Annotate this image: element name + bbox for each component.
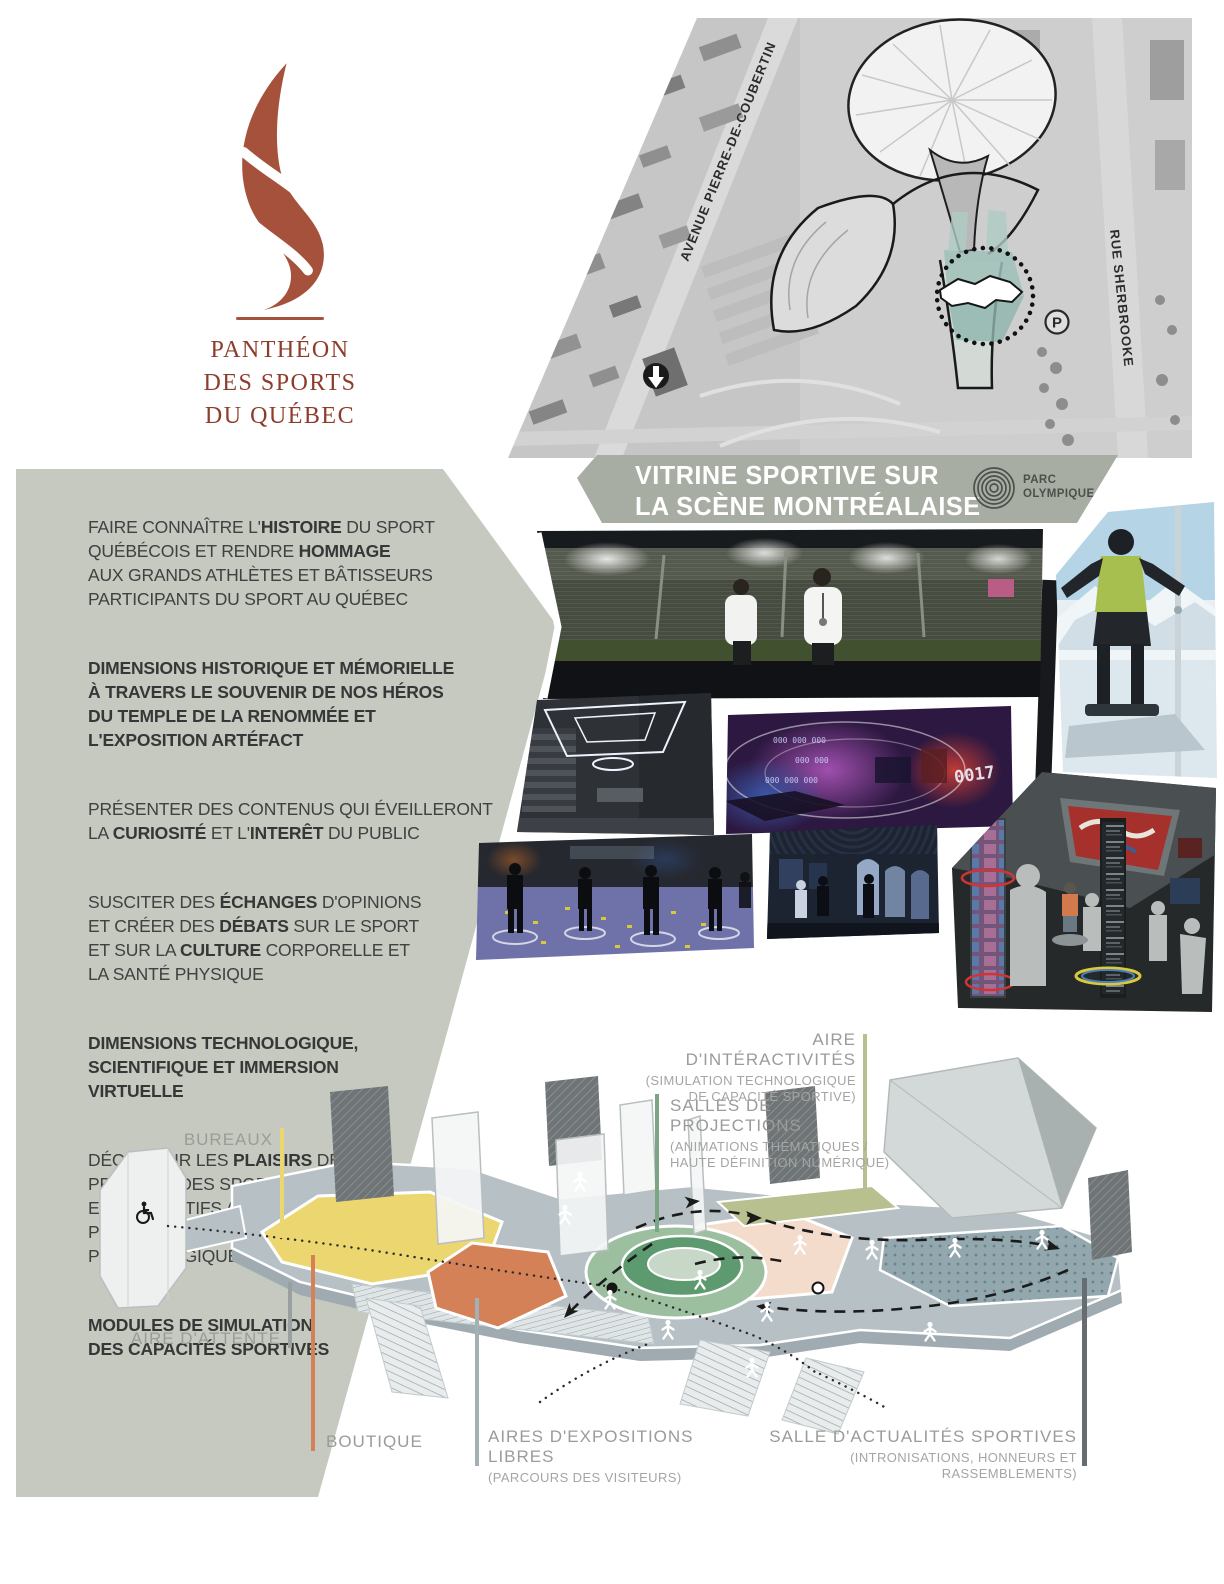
- plan-label-title: BOUTIQUE: [326, 1432, 466, 1452]
- svg-text:000 000: 000 000: [795, 756, 829, 765]
- plan-label-interactivites: AIRE D'INTÉRACTIVITÉS (SIMULATION TECHNO…: [640, 1030, 856, 1106]
- photo-neon-gallery: [505, 692, 715, 842]
- photo-ski-simulator: [1055, 500, 1217, 778]
- svg-text:P: P: [1052, 315, 1062, 332]
- plan-label-sub: (INTRONISATIONS, HONNEURS ET RASSEMBLEME…: [759, 1450, 1077, 1483]
- panorama-figures: [536, 527, 1044, 703]
- plan-label-actualites: SALLE D'ACTUALITÉS SPORTIVES (INTRONISAT…: [759, 1427, 1077, 1483]
- svg-text:000 000 000: 000 000 000: [773, 736, 826, 745]
- plan-label-attente: AIRE D'ATTENTE: [105, 1329, 281, 1349]
- svg-text:0017: 0017: [953, 762, 996, 788]
- plan-label-title: SALLES DE PROJECTIONS: [670, 1096, 900, 1136]
- plan-label-sub: (PARCOURS DES VISITEURS): [488, 1470, 748, 1486]
- leader-projections: [655, 1094, 659, 1232]
- banner: VITRINE SPORTIVE SUR LA SCÈNE MONTRÉALAI…: [575, 452, 1120, 524]
- leader-boutique: [311, 1255, 315, 1451]
- ski-scene: [1055, 500, 1217, 778]
- leader-expositions: [475, 1298, 479, 1466]
- logo-line-3: DU QUÉBEC: [190, 400, 370, 433]
- photo-interactive-floor: [475, 833, 755, 961]
- parc-olympique-wordmark: PARC OLYMPIQUE: [1023, 473, 1095, 502]
- photo-stadium-interview: [536, 527, 1044, 703]
- pantheon-logo: PANTHÉON DES SPORTS DU QUÉBEC: [190, 60, 370, 433]
- leader-attente: [288, 1282, 292, 1348]
- plan-label-title: SALLE D'ACTUALITÉS SPORTIVES: [759, 1427, 1077, 1447]
- plan-label-title: AIRES D'EXPOSITIONS LIBRES: [488, 1427, 748, 1467]
- mission-paragraph: FAIRE CONNAÎTRE L'HISTOIRE DU SPORT QUÉB…: [88, 515, 498, 611]
- mission-paragraph: DIMENSIONS HISTORIQUE ET MÉMORIELLE À TR…: [88, 656, 498, 752]
- floor-plan-axonometric: [60, 1050, 1170, 1470]
- neon-lines: [505, 692, 715, 842]
- aerial-site-map: P AVENUE PIERRE-DE-COUBERTIN RUE SHERBRO…: [500, 18, 1192, 458]
- path-node-open: [813, 1283, 824, 1294]
- plan-label-title: AIRE D'ATTENTE: [105, 1329, 281, 1349]
- visitor-silhouettes: [507, 863, 751, 935]
- entrance-tower: [100, 1148, 186, 1308]
- plan-label-title: AIRE D'INTÉRACTIVITÉS: [640, 1030, 856, 1070]
- svg-text:000 000 000: 000 000 000: [765, 776, 818, 785]
- plan-label-bureaux: BUREAUX: [157, 1130, 273, 1150]
- photo-purple-media-wall: 000 000 000 000 000 000 000 000 0017: [725, 705, 1015, 835]
- banner-title: VITRINE SPORTIVE SUR LA SCÈNE MONTRÉALAI…: [635, 460, 981, 522]
- plan-label-boutique: BOUTIQUE: [326, 1432, 466, 1452]
- plan-label-title: BUREAUX: [157, 1130, 273, 1150]
- presentation-board: FAIRE CONNAÎTRE L'HISTOIRE DU SPORT QUÉB…: [0, 0, 1224, 1584]
- leader-bureaux: [280, 1128, 284, 1238]
- flame-icon: [190, 60, 370, 310]
- logo-line-2: DES SPORTS: [190, 367, 370, 400]
- photo-blue-gallery: [765, 823, 940, 941]
- floor-projection: [475, 833, 755, 961]
- logo-wordmark: PANTHÉON DES SPORTS DU QUÉBEC: [190, 334, 370, 433]
- mission-paragraph: SUSCITER DES ÉCHANGES D'OPINIONS ET CRÉE…: [88, 890, 498, 986]
- panel-arrow-outline: [520, 515, 580, 715]
- metro-icon: [643, 363, 669, 389]
- mission-paragraph: PRÉSENTER DES CONTENUS QUI ÉVEILLERONT L…: [88, 797, 498, 845]
- media-wall-graphics: 000 000 000 000 000 000 000 000 0017: [725, 705, 1015, 835]
- plan-label-projections: SALLES DE PROJECTIONS (ANIMATIONS THÉMAT…: [670, 1096, 900, 1172]
- logo-line-1: PANTHÉON: [190, 334, 370, 367]
- plan-label-sub: (ANIMATIONS THÉMATIQUES / HAUTE DÉFINITI…: [670, 1139, 900, 1172]
- parking-icon: P: [1046, 311, 1069, 334]
- plan-label-expositions: AIRES D'EXPOSITIONS LIBRES (PARCOURS DES…: [488, 1427, 748, 1486]
- logo-underline: [236, 317, 324, 320]
- blue-gallery-scene: [765, 823, 940, 941]
- parc-olympique-icon: [971, 465, 1017, 511]
- leader-actualites: [1082, 1278, 1087, 1466]
